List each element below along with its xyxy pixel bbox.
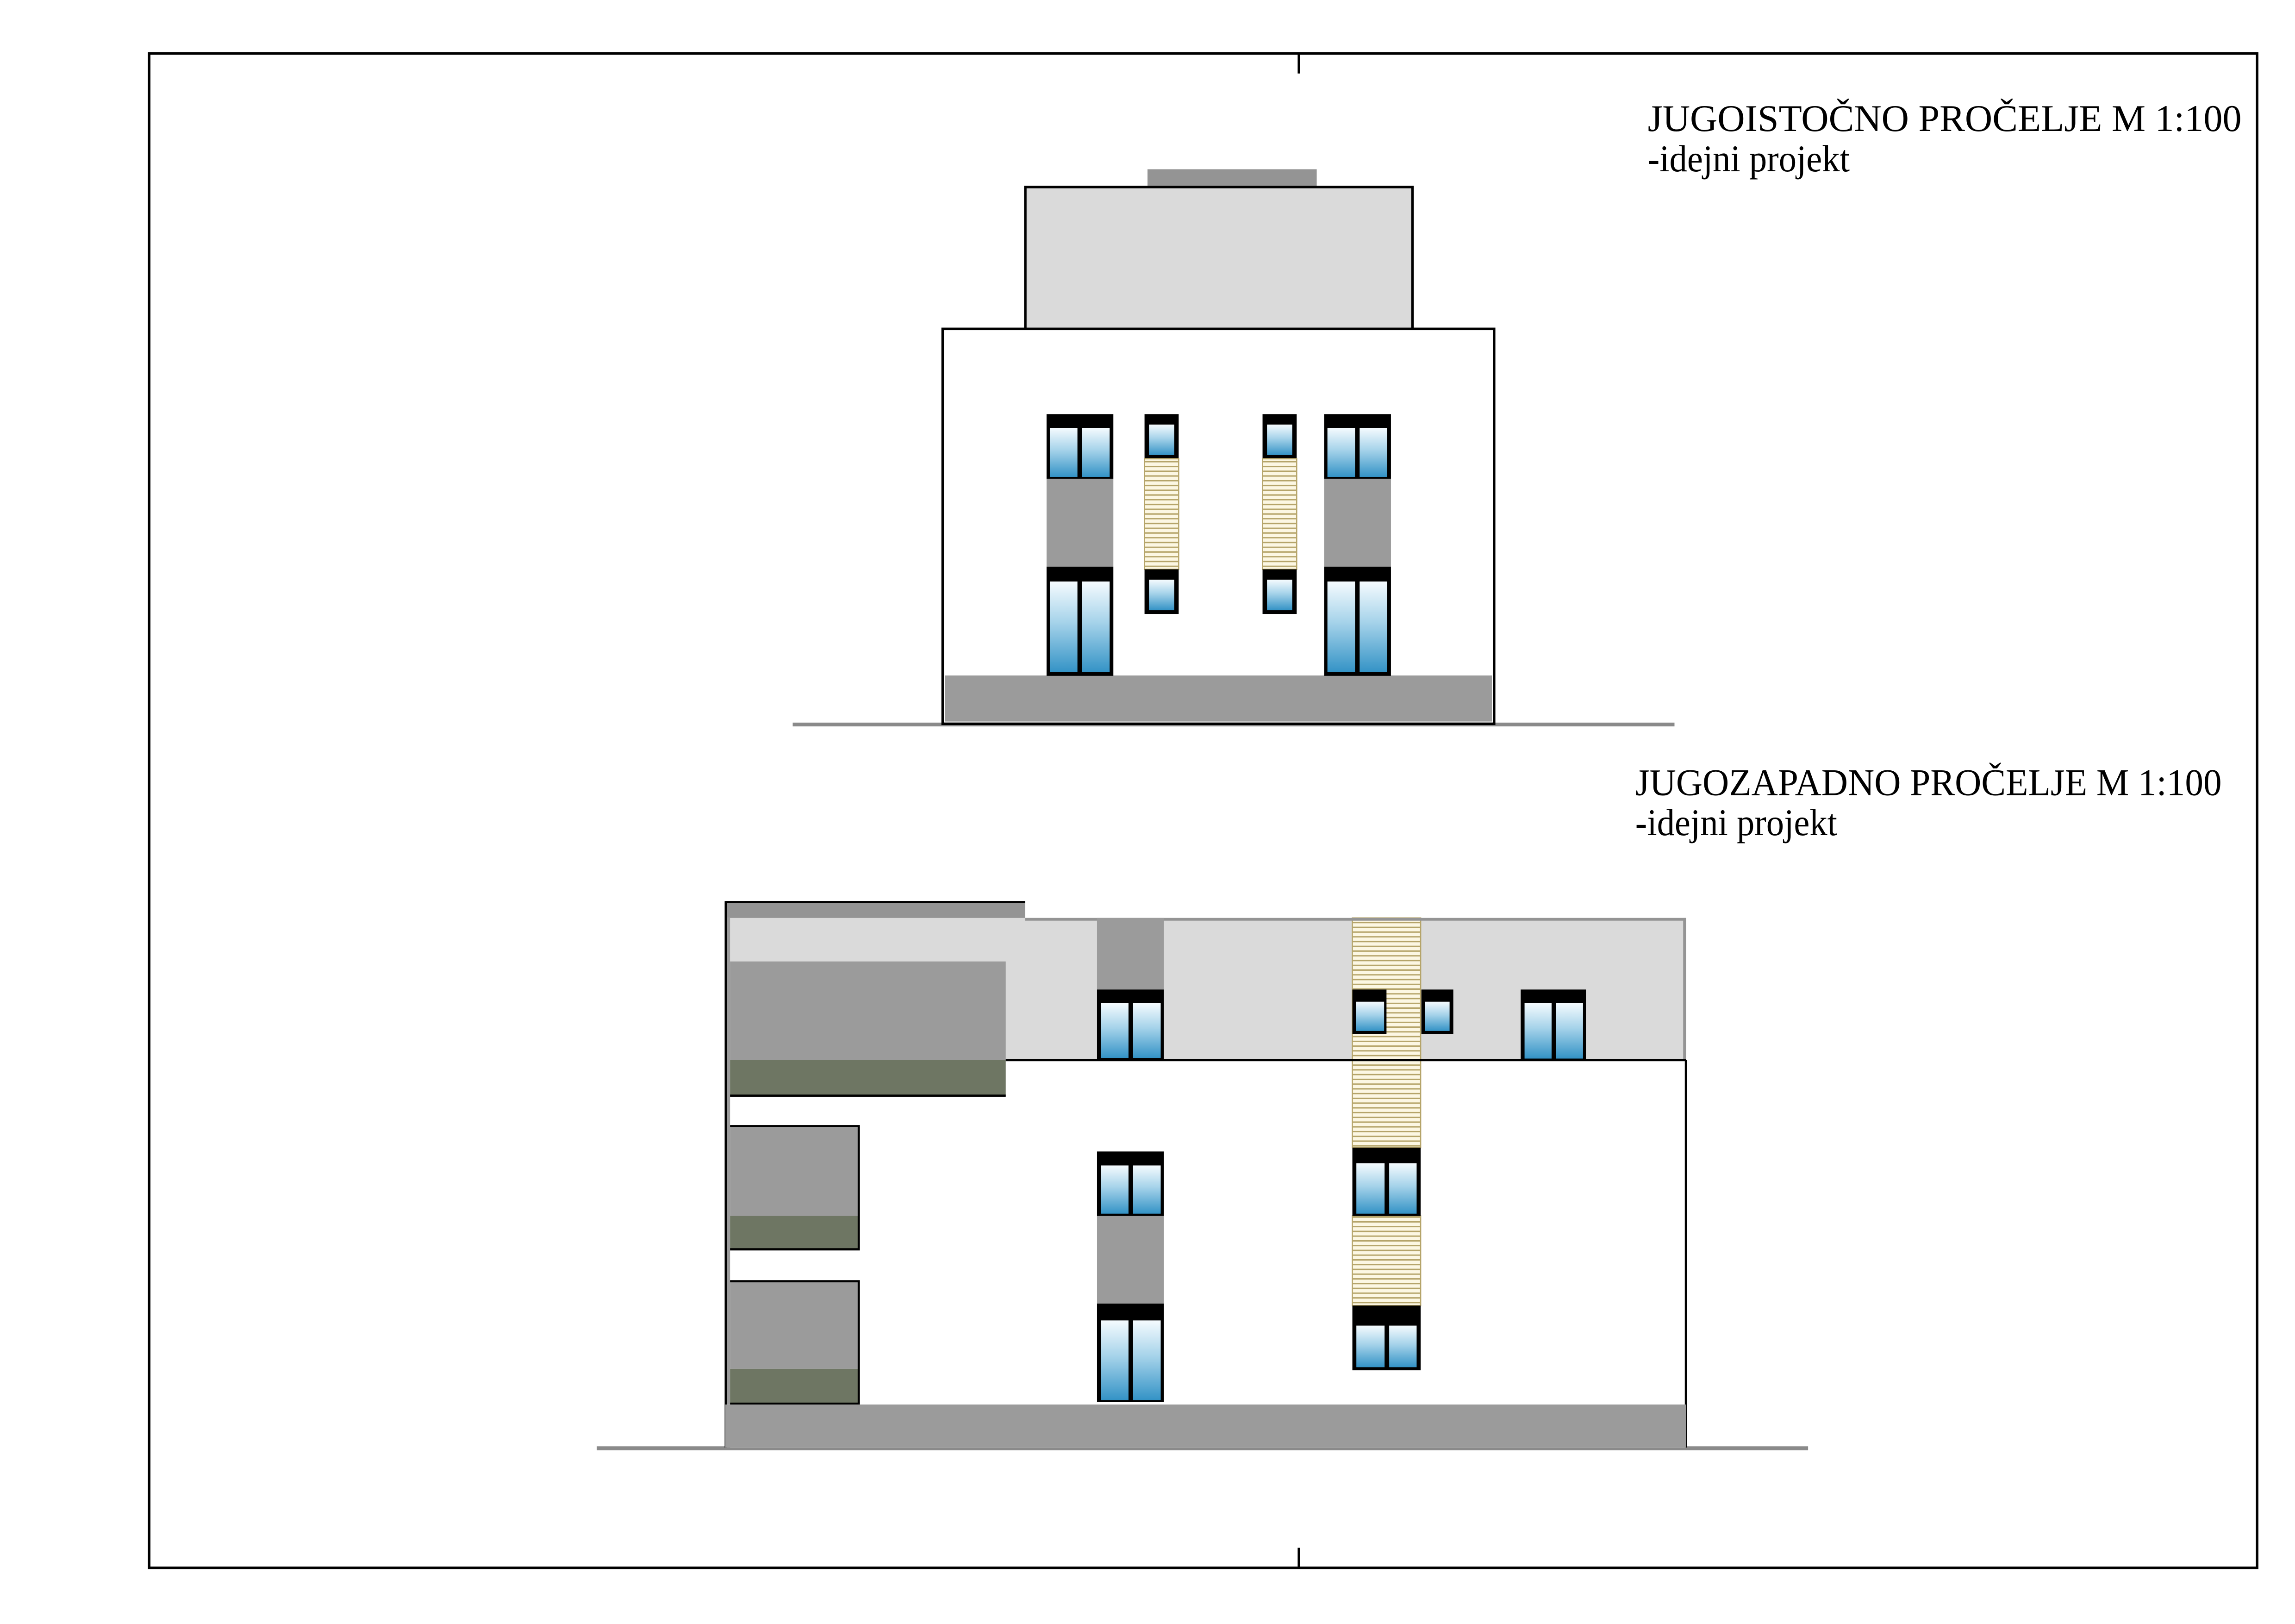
small-window-pane — [1267, 580, 1292, 610]
small-window-pane — [1356, 1002, 1384, 1031]
facade-body — [942, 329, 1494, 724]
small-window-pane — [1267, 425, 1292, 455]
window-pane — [1133, 1003, 1161, 1058]
window-pane — [1525, 1003, 1552, 1059]
right-window-column — [1324, 414, 1391, 676]
window-pane — [1328, 428, 1355, 477]
facade-body — [730, 1060, 1686, 1448]
window-pane — [1356, 1326, 1384, 1368]
window-pane — [1133, 1165, 1161, 1213]
right-window-column — [1521, 989, 1586, 1060]
roller-shutter-panel — [1145, 459, 1179, 569]
window-pane — [1360, 581, 1387, 672]
spandrel-panel — [1324, 479, 1391, 567]
window-pane — [1328, 581, 1355, 672]
small-window-pane — [1425, 1002, 1450, 1031]
window-pane — [1101, 1003, 1129, 1058]
balcony-slab-olive — [730, 1216, 859, 1249]
window-pane — [1360, 428, 1387, 477]
drawing-sheet: JUGOISTOČNO PROČELJE M 1:100 -idejni pro… — [0, 0, 2295, 1624]
elevation-drawing: JUGOISTOČNO PROČELJE M 1:100 -idejni pro… — [0, 0, 2295, 1624]
roller-shutter-strip — [1353, 1216, 1421, 1306]
balcony-parapet — [730, 1281, 859, 1369]
small-window-pane — [1149, 580, 1174, 610]
terrace-slab-olive — [730, 1060, 1006, 1096]
balcony-parapet — [730, 1126, 859, 1216]
window-pane — [1050, 428, 1078, 477]
terrace-parapet — [730, 962, 1006, 1060]
right-shutter-column — [1263, 414, 1297, 614]
southwest-elevation: JUGOZAPADNO PROČELJE M 1:100 -idejni pro… — [597, 761, 2221, 1448]
attic-block — [1025, 187, 1412, 330]
spandrel-panel — [1097, 1216, 1164, 1304]
plinth — [725, 1405, 1686, 1448]
chimney — [1147, 169, 1317, 188]
spandrel-panel — [1047, 479, 1113, 567]
roller-shutter-panel — [1263, 459, 1297, 569]
plinth — [945, 675, 1492, 721]
southwest-subtitle: -idejni projekt — [1635, 801, 1837, 843]
southeast-title: JUGOISTOČNO PROČELJE M 1:100 — [1648, 97, 2242, 139]
southwest-title: JUGOZAPADNO PROČELJE M 1:100 — [1635, 761, 2222, 803]
window-pane — [1101, 1165, 1129, 1213]
window-pane — [1356, 1163, 1384, 1214]
southeast-subtitle: -idejni projekt — [1648, 137, 1850, 180]
window-pane — [1082, 581, 1110, 672]
window-pane — [1050, 581, 1078, 672]
recessed-panel — [1097, 918, 1164, 990]
roof-slab — [725, 901, 1025, 918]
small-window-pane — [1149, 425, 1174, 455]
window-pane — [1389, 1163, 1416, 1214]
balcony-slab-olive — [730, 1369, 859, 1404]
left-window-column — [1047, 414, 1113, 676]
window-pane — [1101, 1320, 1129, 1400]
window-pane — [1133, 1320, 1161, 1400]
left-shutter-column — [1145, 414, 1179, 614]
window-pane — [1556, 1003, 1583, 1059]
window-pane — [1082, 428, 1110, 477]
southeast-elevation: JUGOISTOČNO PROČELJE M 1:100 -idejni pro… — [793, 97, 2242, 725]
middle-window-column — [1097, 918, 1164, 1402]
window-pane — [1389, 1326, 1416, 1368]
